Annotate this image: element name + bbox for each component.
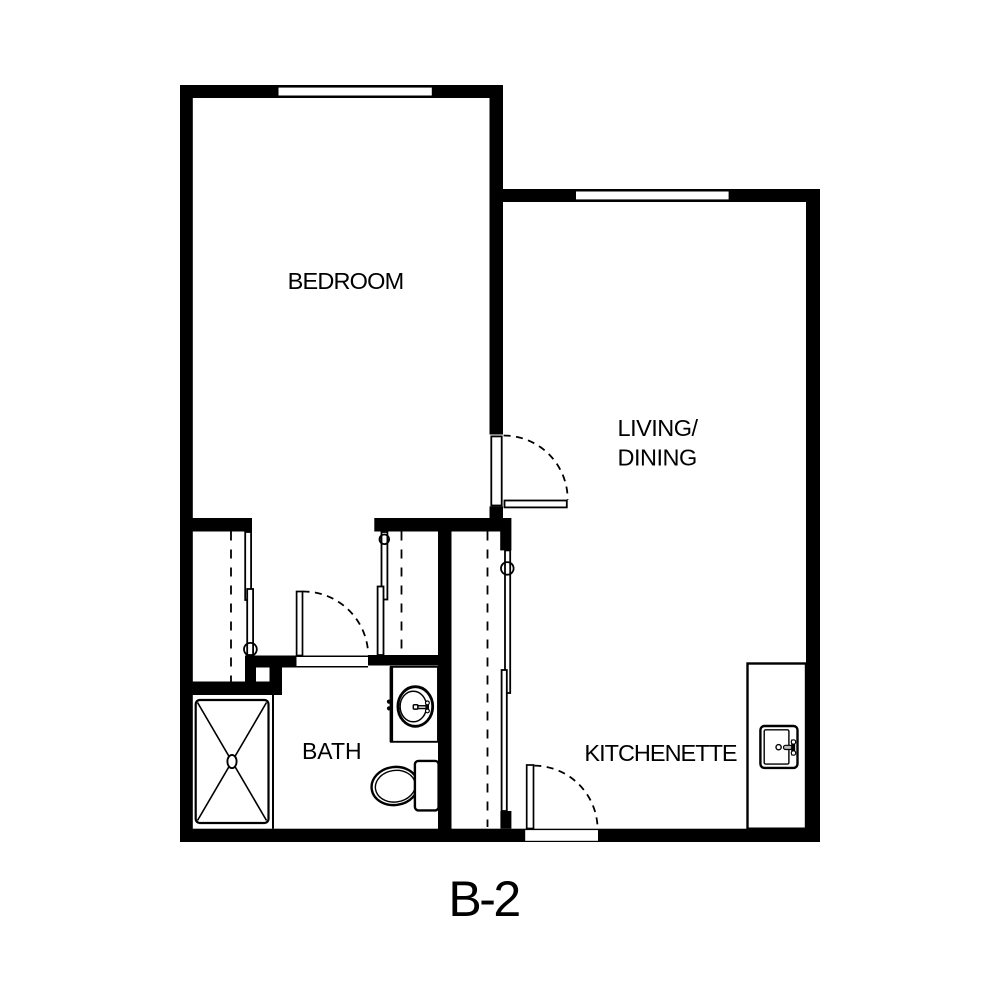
svg-text:BATH: BATH xyxy=(302,738,362,764)
svg-text:B-2: B-2 xyxy=(448,871,519,927)
svg-text:KITCHENETTE: KITCHENETTE xyxy=(584,740,737,766)
svg-text:LIVING/: LIVING/ xyxy=(618,415,699,441)
svg-text:DINING: DINING xyxy=(618,444,697,470)
svg-text:BEDROOM: BEDROOM xyxy=(288,268,404,294)
